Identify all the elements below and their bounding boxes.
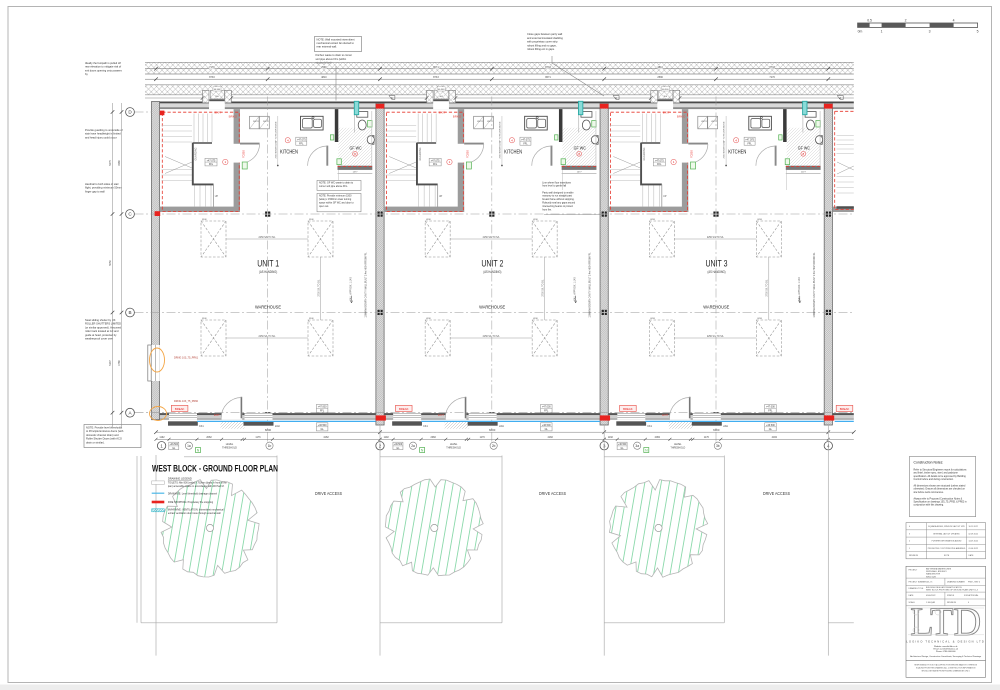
svg-text:Email: ourinfo@ltd-ltd.co.uk: Email: ourinfo@ltd-ltd.co.uk: [933, 647, 957, 650]
svg-text:2250 S/L TO S/L: 2250 S/L TO S/L: [259, 336, 277, 338]
svg-text:BRKO: BRKO: [229, 114, 238, 118]
svg-text:3b: 3b: [716, 444, 720, 448]
svg-text:NOTE: Wall mounted intermitten: NOTE: Wall mounted intermittent: [317, 38, 355, 42]
svg-text:A: A: [391, 96, 393, 100]
svg-text:rear external wall.: rear external wall.: [317, 45, 338, 49]
svg-text:1192: 1192: [159, 436, 165, 439]
svg-text:WEST BLOCK - GROUND FLOOR PLAN: WEST BLOCK - GROUND FLOOR PLAN: [152, 464, 278, 475]
svg-text:KITCHEN: KITCHEN: [504, 149, 522, 155]
svg-text:W08: W08: [757, 219, 762, 221]
svg-text:12MM MASONRY CAVITY WALL BUILT: 12MM MASONRY CAVITY WALL BUILT 2.4m HIGH…: [589, 252, 592, 318]
svg-text:DRIVE ACCESS: DRIVE ACCESS: [763, 491, 790, 496]
svg-text:+47.075: +47.075: [431, 159, 440, 162]
svg-text:FD30S: FD30S: [466, 150, 469, 158]
svg-text:with proprietary cover strip: with proprietary cover strip: [527, 40, 558, 44]
svg-text:specification. All details to: specification. All details to be approve…: [914, 475, 967, 478]
svg-text:6000: 6000: [265, 428, 272, 432]
svg-text:PROJECTED COST PRINCIPLE AMEND: PROJECTED COST PRINCIPLE AMENDED: [928, 547, 966, 550]
svg-text:WAREHOUSE: WAREHOUSE: [479, 304, 505, 309]
svg-text:INTERNAL LAYOUT UPDATED: INTERNAL LAYOUT UPDATED: [933, 532, 960, 535]
svg-text:2250 S/L TO S/L: 2250 S/L TO S/L: [259, 237, 277, 239]
svg-text:W08: W08: [426, 318, 431, 320]
svg-text:DRAWING TITLE: DRAWING TITLE: [909, 587, 924, 590]
svg-text:REVISION: REVISION: [909, 555, 919, 557]
svg-text:W08: W08: [202, 318, 207, 320]
svg-text:DRAWING NUMBER: DRAWING NUMBER: [947, 580, 965, 583]
svg-text:WANDSWORTH: WANDSWORTH: [926, 573, 941, 576]
svg-text:Always refer to Proposed Const: Always refer to Proposed Construction No…: [914, 497, 963, 500]
svg-text:DRIVE ACCESS: DRIVE ACCESS: [539, 491, 566, 496]
svg-text:5275: 5275: [109, 160, 112, 166]
svg-text:W08: W08: [650, 219, 655, 221]
svg-text:open out.: open out.: [319, 205, 329, 208]
svg-text:1: 1: [881, 30, 883, 34]
svg-text:FFL: FFL: [544, 410, 549, 413]
svg-text:2250 S/L TO S/L: 2250 S/L TO S/L: [483, 336, 501, 338]
svg-text:W08: W08: [202, 219, 207, 221]
svg-text:robust filling and no gaps,: robust filling and no gaps,: [527, 43, 557, 47]
svg-text:+47.075: +47.075: [207, 159, 216, 162]
svg-text:Phone: 0786 0000000: Phone: 0786 0000000: [936, 651, 957, 653]
svg-text:W08: W08: [426, 219, 431, 221]
svg-text:DRAINAGE: Level threshold drai: DRAINAGE: Level threshold drainage chann…: [168, 493, 218, 496]
svg-text:3: 3: [929, 30, 931, 34]
svg-text:EXIT: EXIT: [438, 413, 444, 417]
svg-text:UP: UP: [439, 195, 443, 198]
svg-text:2250 S/L TO S/L: 2250 S/L TO S/L: [707, 237, 725, 239]
svg-text:ROLLER SHUTTERS LIMITED: ROLLER SHUTTERS LIMITED: [85, 322, 121, 326]
svg-text:WEST BLOCK PROPOSED GF GROUND: WEST BLOCK PROPOSED GF GROUND PLANS UNIT…: [926, 588, 978, 591]
svg-text:5050: 5050: [109, 260, 112, 266]
svg-text:2050 INNER LEAF TO FLOOR EDGE: 2050 INNER LEAF TO FLOOR EDGE: [723, 121, 726, 158]
svg-text:PROJECT NUMBER: PROJECT NUMBER: [909, 581, 927, 583]
svg-text:2082: 2082: [430, 436, 436, 439]
svg-text:1477: 1477: [577, 172, 583, 174]
svg-text:LEVEL: LEVEL: [450, 443, 458, 446]
svg-text:+46.500: +46.500: [394, 444, 403, 446]
svg-text:FALL APPROX. 1:140: FALL APPROX. 1:140: [574, 277, 577, 301]
svg-text:4: 4: [909, 526, 910, 528]
svg-text:3: 3: [909, 533, 910, 535]
svg-text:(AS HANDING): (AS HANDING): [259, 270, 277, 274]
svg-text:2ALI: 2ALI: [275, 425, 280, 428]
svg-text:BRKO: BRKO: [677, 114, 686, 118]
svg-text:2a: 2a: [411, 444, 415, 448]
svg-text:2050 INNER LEAF TO FLOOR EDGE: 2050 INNER LEAF TO FLOOR EDGE: [274, 121, 277, 158]
svg-text:All dimensions shown are struc: All dimensions shown are structural (unl…: [914, 485, 966, 488]
svg-text:8733: 8733: [769, 66, 775, 69]
svg-text:GUARDING: GUARDING: [419, 147, 422, 160]
svg-text:and head injury could occur: and head injury could occur: [85, 135, 117, 139]
svg-text:FIRE STOPPING: Proprietary fir: FIRE STOPPING: Proprietary fire stopping: [168, 501, 214, 504]
svg-text:12MM MASONRY CAVITY WALL BUILT: 12MM MASONRY CAVITY WALL BUILT 2.4m HIGH…: [813, 252, 816, 318]
svg-text:1b: 1b: [268, 444, 272, 448]
svg-text:FURTHER INFORMATION ADDED: FURTHER INFORMATION ADDED: [932, 540, 962, 543]
svg-text:4182: 4182: [772, 436, 778, 439]
svg-text:2b: 2b: [492, 444, 496, 448]
svg-text:1980: 1980: [118, 160, 121, 166]
svg-text:DATE: DATE: [969, 554, 975, 557]
svg-text:2ALI: 2ALI: [499, 425, 504, 428]
svg-text:(AS HANDING): (AS HANDING): [483, 270, 501, 274]
svg-text:BUILDING REGULATIONS APPLICATI: BUILDING REGULATIONS APPLICATION: [926, 586, 962, 589]
svg-text:BREAK: BREAK: [399, 407, 409, 411]
svg-text:STATUS: STATUS: [947, 594, 955, 597]
svg-text:14.07.2022: 14.07.2022: [969, 541, 978, 543]
svg-text:THRESHOLD: THRESHOLD: [670, 447, 685, 450]
svg-text:EXIT: EXIT: [215, 110, 222, 114]
svg-text:UNIT 1: UNIT 1: [257, 259, 279, 270]
svg-text:10.11.2022: 10.11.2022: [969, 526, 978, 528]
svg-text:and lintel, timber spec, steel: and lintel, timber spec, steel, and pads…: [914, 472, 959, 475]
svg-text:THRESHOLD: THRESHOLD: [446, 447, 461, 450]
svg-text:LEVEL: LEVEL: [226, 443, 234, 446]
svg-text:W4TR: W4TR: [711, 121, 717, 123]
svg-text:GF WC: GF WC: [574, 145, 586, 150]
svg-text:PR09 - REV 4: PR09 - REV 4: [968, 581, 980, 583]
svg-text:4: 4: [953, 19, 955, 23]
svg-text:W4TR: W4TR: [477, 121, 483, 123]
svg-text:SHOULD BE TAKEN FROM FIGURED D: SHOULD BE TAKEN FROM FIGURED DIMENSIONS …: [921, 669, 970, 672]
svg-text:W4TR: W4TR: [253, 121, 259, 123]
svg-text:GF WC: GF WC: [798, 145, 810, 150]
svg-text:+47.075: +47.075: [297, 138, 306, 141]
svg-text:W4TR: W4TR: [487, 121, 493, 123]
svg-text:BATTERSEA WAREHOUSES: BATTERSEA WAREHOUSES: [926, 568, 952, 571]
svg-text:1: 1: [909, 548, 910, 550]
svg-text:8733: 8733: [209, 76, 215, 79]
svg-text:roller track located at GF and: roller track located at GF and: [85, 329, 119, 333]
svg-text:FALL APPROX. 1:140: FALL APPROX. 1:140: [350, 277, 353, 301]
svg-text:1192: 1192: [384, 436, 390, 439]
svg-text:Control before and during cons: Control before and during construction.: [914, 478, 955, 481]
svg-text:(AS HANDING): (AS HANDING): [708, 270, 726, 274]
svg-text:4810: 4810: [657, 66, 663, 69]
svg-text:WAREHOUSE: WAREHOUSE: [703, 304, 729, 309]
svg-text:SCALING FROM THIS DRAWING. ALL: SCALING FROM THIS DRAWING. ALL CONSTRUCT…: [916, 666, 976, 669]
svg-text:+47.000: +47.000: [766, 406, 775, 409]
svg-text:1780: 1780: [118, 360, 121, 366]
svg-text:GUARDING: GUARDING: [643, 147, 646, 160]
svg-text:GUARDING: GUARDING: [195, 147, 198, 160]
svg-text:FFL: FFL: [433, 163, 438, 166]
svg-text:2590: 2590: [321, 66, 327, 69]
svg-text:DRIVE ACCESS: DRIVE ACCESS: [315, 491, 342, 496]
svg-text:Construction Notes:: Construction Notes:: [914, 461, 944, 465]
svg-text:Ideally the footpath is pulled: Ideally the footpath is pulled off: [85, 61, 121, 65]
svg-text:flight, providing minimum 50mm: flight, providing minimum 50mm: [85, 186, 122, 190]
svg-text:8733: 8733: [545, 66, 551, 69]
svg-text:Close gaps between party wall: Close gaps between party wall: [527, 32, 563, 36]
svg-text:BREAK: BREAK: [175, 407, 185, 411]
svg-text:+47.075: +47.075: [521, 138, 530, 141]
svg-text:B: B: [128, 310, 131, 315]
svg-text:+47.075: +47.075: [745, 138, 754, 141]
svg-text:CK1: CK1: [423, 425, 428, 428]
svg-text:FD30S: FD30S: [242, 150, 245, 158]
svg-text:W08: W08: [309, 318, 314, 320]
svg-text:EXIT: EXIT: [439, 110, 446, 114]
svg-text:2082: 2082: [655, 436, 661, 439]
svg-text:W08: W08: [650, 318, 655, 320]
svg-text:FFL: FFL: [209, 163, 214, 166]
svg-text:W08: W08: [533, 318, 538, 320]
svg-text:+46.500: +46.500: [618, 444, 627, 446]
svg-text:SMITHDALE, BRUNLEY: SMITHDALE, BRUNLEY: [926, 570, 948, 573]
svg-text:SQUARE ADDED, WINDOW LAYOUT UP: SQUARE ADDED, WINDOW LAYOUT UPD: [928, 525, 965, 528]
svg-text:+46.500: +46.500: [542, 424, 551, 427]
svg-text:103_75: 103_75: [926, 581, 932, 583]
svg-text:8671: 8671: [545, 76, 551, 79]
svg-text:extract ventilation duct route: extract ventilation duct route through e…: [168, 512, 221, 515]
svg-text:02.09.2022: 02.09.2022: [969, 533, 978, 535]
svg-text:NOTE: NOTE: [944, 555, 950, 557]
svg-text:5: 5: [977, 30, 979, 34]
svg-text:RESPONSIBILITY IS NOT ACCEPTED: RESPONSIBILITY IS NOT ACCEPTED FOR ERROR…: [914, 664, 977, 667]
svg-text:4810: 4810: [321, 76, 327, 79]
svg-text:CK1: CK1: [199, 425, 204, 428]
svg-text:Steel sliding shutter by UK: Steel sliding shutter by UK: [85, 318, 116, 322]
svg-text:2ALI: 2ALI: [723, 425, 728, 428]
svg-text:EXIT: EXIT: [214, 413, 220, 417]
svg-text:1176: 1176: [255, 436, 261, 439]
svg-text:1477: 1477: [353, 172, 359, 174]
svg-text:weatherproof cover over: weatherproof cover over: [85, 337, 113, 341]
svg-text:FFL: FFL: [523, 142, 528, 145]
svg-text:5137: 5137: [109, 360, 112, 366]
svg-text:01.06.2022: 01.06.2022: [969, 548, 978, 550]
svg-text:+47.000: +47.000: [318, 406, 327, 409]
svg-text:W08: W08: [533, 219, 538, 221]
svg-text:0.5: 0.5: [867, 19, 872, 23]
svg-text:8671: 8671: [433, 66, 439, 69]
svg-text:from fire.: from fire.: [542, 208, 552, 211]
svg-text:2250 S/L TO S/L: 2250 S/L TO S/L: [707, 336, 725, 338]
svg-text:3a: 3a: [635, 444, 639, 448]
svg-text:DRAWING LEGEND: DRAWING LEGEND: [168, 477, 192, 481]
svg-text:Specification on drawings 103_: Specification on drawings 103_75_PR01 & …: [914, 501, 968, 504]
svg-text:soil pipe above FFL (within: soil pipe above FFL (within: [316, 57, 347, 61]
svg-text:UP: UP: [215, 195, 219, 198]
svg-text:FOR APPROVAL: FOR APPROVAL: [964, 594, 978, 597]
svg-text:4182: 4182: [323, 436, 329, 439]
svg-text:2250 S/L TO S/L: 2250 S/L TO S/L: [483, 237, 501, 239]
svg-text:FFL: FFL: [320, 410, 325, 413]
svg-text:2700 S/L TO S/L: 2700 S/L TO S/L: [767, 279, 769, 297]
svg-text:finger gap to wall: finger gap to wall: [85, 189, 105, 193]
svg-text:W4TR: W4TR: [263, 121, 269, 123]
svg-text:+47.075: +47.075: [655, 159, 664, 162]
svg-text:A: A: [615, 96, 617, 100]
svg-text:CK1: CK1: [647, 425, 652, 428]
svg-text:+46.500: +46.500: [170, 444, 179, 446]
svg-text:drain or similar).: drain or similar).: [86, 440, 105, 444]
svg-text:W08: W08: [309, 219, 314, 221]
svg-text:FFL: FFL: [657, 163, 662, 166]
svg-text:BREAK: BREAK: [623, 407, 633, 411]
svg-text:WAREHOUSE: WAREHOUSE: [255, 304, 281, 309]
svg-text:+46.500: +46.500: [318, 424, 327, 427]
svg-text:EXIT: EXIT: [663, 110, 670, 114]
svg-text:stair have headheight is limit: stair have headheight is limited: [85, 132, 121, 136]
svg-text:Kitchen waste to drain to corn: Kitchen waste to drain to corner: [316, 53, 353, 57]
svg-text:W08: W08: [757, 318, 762, 320]
svg-text:1176: 1176: [704, 436, 710, 439]
svg-text:site before work commences.: site before work commences.: [914, 491, 945, 494]
svg-text:6000: 6000: [713, 428, 720, 432]
svg-text:2700 S/L TO S/L: 2700 S/L TO S/L: [542, 279, 544, 297]
svg-text:1a: 1a: [187, 444, 191, 448]
svg-text:SW11 5QW: SW11 5QW: [926, 576, 936, 578]
svg-text:Website: www.ltd-ltd.co.uk: Website: www.ltd-ltd.co.uk: [934, 645, 957, 648]
svg-text:and external insulated claddin: and external insulated cladding: [527, 36, 563, 40]
svg-text:2: 2: [909, 541, 910, 543]
svg-text:W4TR: W4TR: [701, 121, 707, 123]
svg-text:rear elevation to mitigate ris: rear elevation to mitigate risk of: [85, 65, 121, 69]
svg-text:8733: 8733: [433, 76, 439, 79]
svg-text:2590: 2590: [657, 76, 663, 79]
svg-text:FFL: FFL: [768, 410, 773, 413]
svg-text:FD30S: FD30S: [691, 150, 694, 158]
svg-text:domestic channel drain) and: domestic channel drain) and: [86, 433, 119, 437]
svg-text:KITCHEN: KITCHEN: [728, 149, 746, 155]
svg-text:46.900: 46.900: [214, 89, 221, 91]
svg-text:from level to gentle fall: from level to gentle fall: [542, 185, 566, 188]
svg-text:Refer to Structural Engineers: Refer to Structural Engineers report for…: [914, 469, 968, 472]
svg-text:PROJECT: PROJECT: [909, 569, 919, 571]
svg-text:DRNG 103_75_PR60: DRNG 103_75_PR60: [174, 400, 199, 403]
svg-text:LOGIKO TECHNICAL & DESIGN LTD: LOGIKO TECHNICAL & DESIGN LTD: [906, 640, 985, 644]
svg-text:conjunction with this drawing.: conjunction with this drawing.: [914, 504, 945, 507]
svg-text:1176: 1176: [480, 436, 486, 439]
svg-text:FFL: FFL: [747, 142, 752, 145]
svg-text:+46.500: +46.500: [766, 424, 775, 427]
svg-text:2050 INNER LEAF TO FLOOR EDGE: 2050 INNER LEAF TO FLOOR EDGE: [499, 121, 502, 158]
svg-text:A: A: [839, 96, 841, 100]
svg-text:2082: 2082: [206, 436, 212, 439]
svg-text:robust filling etc in gaps.: robust filling etc in gaps.: [527, 47, 555, 51]
svg-text:pan) accessible space in accor: pan) accessible space in accordance with…: [168, 485, 225, 488]
svg-text:exit doors opening onto passer: exit doors opening onto passers: [85, 68, 122, 72]
svg-text:THRESHOLD: THRESHOLD: [222, 447, 237, 450]
svg-text:DRNG 103_75_PR61: DRNG 103_75_PR61: [174, 357, 199, 360]
svg-text:2700 S/L TO S/L: 2700 S/L TO S/L: [318, 279, 320, 297]
svg-text:7170: 7170: [769, 76, 775, 79]
svg-text:4182: 4182: [547, 436, 553, 439]
svg-text:12MM MASONRY CAVITY WALL BUILT: 12MM MASONRY CAVITY WALL BUILT 2.4m HIGH…: [365, 252, 368, 318]
svg-text:DATE: DATE: [909, 594, 915, 597]
svg-text:GF WC: GF WC: [350, 145, 362, 150]
svg-text:(or similar approved). Assumed: (or similar approved). Assumed: [85, 325, 121, 329]
svg-text:46.900: 46.900: [438, 89, 445, 91]
svg-text:mechanical extract fan ducted: mechanical extract fan ducted to: [317, 41, 355, 45]
svg-text:corner soil pipe above FFL.: corner soil pipe above FFL.: [319, 185, 348, 188]
svg-text:FFL: FFL: [299, 142, 304, 145]
svg-text:NOTE: Provide level thresholds: NOTE: Provide level thresholds: [86, 426, 123, 430]
svg-text:1192: 1192: [608, 436, 614, 439]
svg-text:to Principle Entrance doors (w: to Principle Entrance doors (with: [86, 429, 124, 433]
svg-text:1477: 1477: [801, 172, 807, 174]
svg-text:2: 2: [905, 19, 907, 23]
svg-text:EXIT: EXIT: [662, 413, 668, 417]
svg-text:0m: 0m: [858, 30, 863, 34]
svg-text:Roller Shutter Doors (with ACO: Roller Shutter Doors (with ACO: [86, 437, 122, 441]
svg-text:UNIT 2: UNIT 2: [481, 259, 503, 270]
svg-text:UP: UP: [663, 195, 667, 198]
svg-text:Architectural Design, Construc: Architectural Design, Construction Consu…: [910, 655, 981, 658]
svg-text:BRKO: BRKO: [453, 114, 462, 118]
svg-text:KITCHEN: KITCHEN: [280, 149, 298, 155]
svg-text:6000: 6000: [489, 428, 496, 432]
svg-text:Provide guarding to underside: Provide guarding to underside of: [85, 128, 123, 132]
svg-text:+47.000: +47.000: [542, 406, 551, 409]
svg-text:LTD: LTD: [910, 599, 981, 644]
svg-text:LEVEL: LEVEL: [674, 443, 682, 446]
svg-text:FALL APPROX. 1:140: FALL APPROX. 1:140: [798, 277, 801, 301]
svg-text:7170: 7170: [209, 66, 215, 69]
svg-text:46.900: 46.900: [662, 89, 669, 91]
svg-text:otherwise). Ensure all dimensi: otherwise). Ensure all dimensions are ch…: [914, 488, 966, 491]
svg-text:01/06/2022: 01/06/2022: [926, 595, 935, 597]
svg-text:UNIT 3: UNIT 3: [706, 259, 728, 270]
svg-text:Handrail to both sides of stai: Handrail to both sides of stair: [85, 182, 119, 186]
svg-text:BREAK: BREAK: [840, 407, 850, 411]
